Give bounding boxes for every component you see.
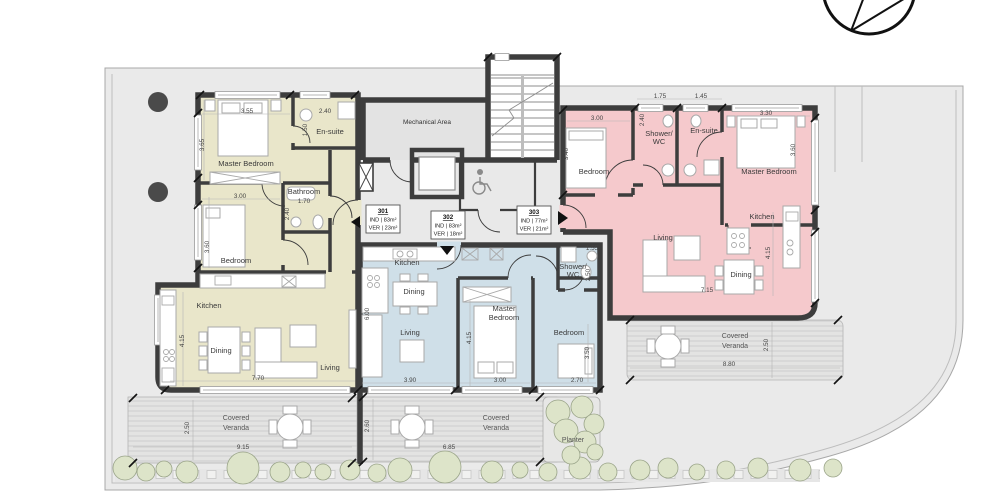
dim: 7.70 — [252, 375, 265, 382]
room-label: Kitchen — [196, 301, 221, 310]
dim: 2.50 — [184, 421, 191, 434]
room-label: En-suite — [316, 127, 344, 136]
floor-plan-page: 301 IND | 83m² VER | 23m² 302 IND | 83m²… — [0, 0, 1000, 500]
dim: 3.00 — [494, 377, 507, 384]
veranda-label: Veranda — [483, 425, 509, 432]
patio-table — [655, 333, 681, 359]
unit-301-number: 301 — [378, 208, 389, 215]
elevator — [412, 150, 462, 197]
dim: 3.40 — [563, 147, 570, 160]
room-label: Dining — [730, 270, 751, 279]
dim: 2.40 — [319, 108, 332, 115]
dim: 3.50 — [584, 346, 591, 359]
room-label: WC — [653, 137, 666, 146]
room-label: Bedroom — [579, 167, 609, 176]
dim: 6.00 — [364, 307, 371, 320]
dim: 4.15 — [179, 334, 186, 347]
veranda-label: Veranda — [722, 343, 748, 350]
dim: 1.55 — [586, 245, 599, 252]
dim: 9.15 — [237, 444, 250, 451]
dim: 2.50 — [585, 268, 592, 281]
dim: 1.45 — [695, 93, 708, 100]
mechanical-area-label: Mechanical Area — [403, 119, 451, 126]
veranda-label: Covered — [483, 415, 510, 422]
room-label: Bathroom — [288, 187, 321, 196]
dim: 6.85 — [443, 444, 456, 451]
dim: 2.70 — [571, 377, 584, 384]
unit-301-indoor-area: IND | 83m² — [370, 218, 397, 224]
dim: 3.00 — [591, 115, 604, 122]
dim: 2.40 — [639, 113, 646, 126]
dim: 2.50 — [763, 338, 770, 351]
duct-shaft — [359, 163, 373, 191]
sofa — [362, 315, 382, 377]
room-label: Living — [400, 328, 420, 337]
dim: 8.80 — [723, 361, 736, 368]
dim: 2.40 — [284, 207, 291, 220]
unit-303-veranda-area: VER | 21m² — [520, 227, 549, 233]
dim: 3.60 — [204, 240, 211, 253]
planter-label: Planter — [562, 437, 585, 444]
veranda-label: Covered — [722, 333, 749, 340]
room-label: WC — [567, 270, 580, 279]
column-tree-icon — [148, 92, 168, 112]
dim: 4.15 — [466, 331, 473, 344]
dim: 3.90 — [404, 377, 417, 384]
paver-strip — [115, 469, 820, 482]
veranda-label: Covered — [223, 415, 250, 422]
room-label: Master — [493, 304, 516, 313]
unit-302-number: 302 — [443, 214, 454, 221]
column-tree-icon — [148, 182, 168, 202]
room-label: Bedroom — [554, 328, 584, 337]
dim: 7.15 — [701, 287, 714, 294]
room-label: Living — [320, 363, 340, 372]
floor-plan-drawing: 301 IND | 83m² VER | 23m² 302 IND | 83m²… — [0, 0, 1000, 500]
room-label: Bedroom — [489, 313, 519, 322]
room-label: Kitchen — [394, 258, 419, 267]
room-label: Dining — [403, 287, 424, 296]
room-label: Living — [653, 233, 673, 242]
dim: 3.55 — [241, 108, 254, 115]
room-label: Master Bedroom — [218, 159, 273, 168]
room-label: Bedroom — [221, 256, 251, 265]
room-label: Kitchen — [749, 212, 774, 221]
room-label: Master Bedroom — [741, 167, 796, 176]
room-label: En-suite — [690, 126, 718, 135]
dim: 3.00 — [234, 193, 247, 200]
patio-table — [399, 414, 425, 440]
unit-303-indoor-area: IND | 77m² — [521, 219, 548, 225]
patio-table — [277, 414, 303, 440]
north-arrow-icon — [823, 0, 915, 34]
dim: 4.15 — [765, 246, 772, 259]
room-label: Dining — [210, 346, 231, 355]
dim: 3.65 — [199, 138, 206, 151]
unit-301-veranda-area: VER | 23m² — [369, 226, 398, 232]
dim: 1.75 — [654, 93, 667, 100]
dim: 3.60 — [790, 143, 797, 156]
unit-302-indoor-area: IND | 83m² — [435, 224, 462, 230]
dim: 2.60 — [364, 419, 371, 432]
unit-302-veranda-area: VER | 18m² — [434, 232, 463, 238]
dim: 3.30 — [760, 110, 773, 117]
dim: 1.70 — [298, 198, 311, 205]
dim: 1.50 — [302, 123, 309, 136]
unit-303-number: 303 — [529, 209, 540, 216]
veranda-label: Veranda — [223, 425, 249, 432]
veranda-center — [360, 397, 557, 462]
